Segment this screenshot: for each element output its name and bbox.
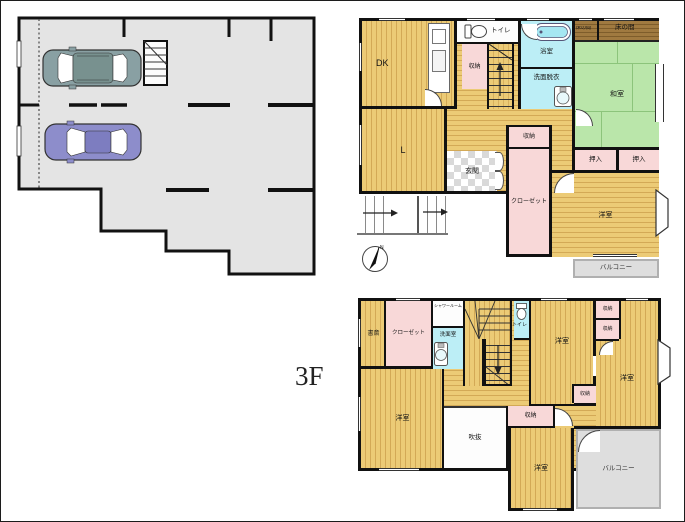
toilet-icon [464,23,488,40]
wall [486,384,512,386]
stair-arrow-down [486,339,510,386]
window [359,125,362,165]
room-label-toilet-3f: トイレ [512,323,527,328]
window [523,508,557,511]
room-label-bath: 浴室 [540,49,553,56]
window [655,64,664,122]
exterior-stairs [357,196,448,235]
room-oshiire-right: 押入 [619,150,659,170]
room-label-washroom-2f: 洗面脱衣 [534,75,560,82]
room-storage-3f-right1: 収納 [596,301,619,318]
stair-direction-arrows [357,196,448,233]
tatami-line [575,63,659,64]
genkan-step-curve [495,152,504,171]
wall [574,403,596,405]
window [541,298,567,301]
room-washroom-3f: 洗面室 [433,328,463,369]
room-washroom-2f: 洗面脱衣 [521,69,572,109]
compass-north-label: N [380,245,384,251]
balcony-2f: バルコニー [573,259,659,278]
tokonoma-strip: 床の間 床の間 [575,21,659,40]
room-toilet-3f: トイレ [514,301,529,338]
floor3-label: 3F [295,361,324,392]
room-label-tokonoma-left: 床の間 [576,26,591,31]
tatami-line [617,42,618,63]
room-label-oshiire-left: 押入 [589,157,602,164]
floorplan-page: DK トイレ 収納 浴室 洗面脱衣 [0,0,685,522]
stairs-3f [465,301,510,386]
window [379,468,419,471]
bathtub-icon [533,23,571,41]
window [358,397,361,431]
wall [506,125,509,257]
room-oshiire-left: 押入 [575,150,616,170]
wall [359,191,509,194]
room-storage-3f-small: 収納 [574,386,596,403]
room-label-closet-3f: クローゼット [392,331,425,337]
room-washitsu: 和室 [575,42,659,147]
room-label-shower: シャワールーム [434,304,462,308]
wall [574,426,661,429]
genkan-step-curve [495,171,504,190]
washbasin-icon [554,86,572,107]
room-living: L [362,109,444,191]
kitchen-counter [428,23,450,93]
room-youshitsu-3f-bottom: 洋室 [508,428,574,511]
room-label-study: 書斎 [367,331,379,337]
room-closet-2f: クローゼット [509,149,549,254]
window [593,254,637,257]
room-label-living: L [400,146,405,155]
room-youshitsu-3f-left: 洋室 [361,369,444,468]
window [358,319,361,347]
tatami-line [575,111,659,112]
washbasin-icon [434,342,448,366]
toilet-icon [516,303,527,320]
window [579,18,592,21]
room-study: 書斎 [361,301,386,367]
window [379,18,405,21]
room-storage-2f-mid: 収納 [509,127,549,147]
room-label-washroom-3f: 洗面室 [440,333,457,339]
tatami-line [632,63,633,111]
wall [510,301,512,386]
room-label-balcony-2f: バルコニー [600,265,632,272]
car-sedan-icon [45,121,141,163]
room-label-youshitsu-3f-mid: 洋室 [555,338,569,345]
window [17,41,21,67]
room-label-closet-2f: クローゼット [511,199,547,205]
room-label-washitsu: 和室 [610,91,624,98]
window [396,298,420,301]
room-label-tokonoma-right: 床の間 [615,25,635,32]
room-closet-3f: クローゼット [386,301,431,367]
window [626,298,648,301]
room-label-youshitsu-3f-bottom: 洋室 [534,465,548,472]
wall [514,338,529,340]
room-label-youshitsu-2f: 洋室 [599,212,613,219]
room-label-oshiire-right: 押入 [633,157,646,164]
room-shower: シャワールーム [433,301,463,327]
room-label-youshitsu-3f-right: 洋室 [620,375,634,382]
wall [597,21,599,40]
wall [596,339,619,341]
kitchen-unit [432,50,446,72]
room-label-storage-3f-small: 収納 [580,392,590,397]
window [467,18,495,21]
wall [619,301,621,339]
room-label-fukinuke: 吹抜 [469,435,482,442]
room-label-balcony-3f: バルコニー [602,466,634,473]
compass-icon: N [358,242,392,276]
room-label-storage-2f-mid: 収納 [523,134,535,140]
room-storage-3f-center: 収納 [508,406,553,426]
room-label-dk: DK [376,59,389,68]
room-label-genkan: 玄関 [465,168,479,175]
wall [508,426,553,428]
room-label-storage-3f-right1: 収納 [602,307,612,312]
wall [512,42,514,109]
room-label-toilet-2f: トイレ [491,28,511,35]
kitchen-sink-icon [432,29,446,44]
window [604,18,634,21]
garage-stairs [144,41,167,85]
stair-arrow-up [489,44,512,109]
window [527,18,549,21]
window [359,43,362,71]
bay-window [657,339,673,385]
room-label-storage-2f-top: 収納 [468,64,480,70]
room-genkan: 玄関 [447,151,497,191]
room-label-youshitsu-3f-left: 洋室 [396,415,410,422]
room-toilet-2f: トイレ [457,21,518,42]
stairs-2f-to-3f [489,44,512,109]
room-storage-3f-right2: 収納 [596,320,619,339]
room-label-storage-3f-right2: 収納 [602,327,612,332]
window [17,126,21,156]
car-suv-icon [43,47,141,89]
garage-plan [1,1,341,291]
tatami-line [601,111,602,147]
bay-window [655,189,671,237]
stair-winders [465,301,510,339]
room-label-storage-3f-center: 収納 [524,413,536,419]
room-storage-2f-top: 収納 [462,44,487,89]
room-fukinuke: 吹抜 [444,406,506,468]
